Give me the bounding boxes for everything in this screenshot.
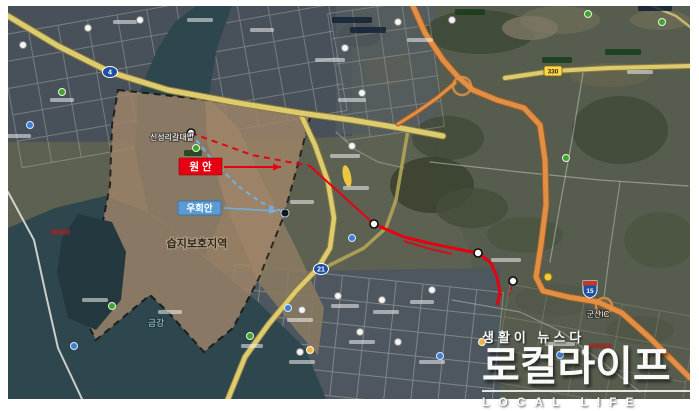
route-bypass-endpoint bbox=[281, 209, 289, 217]
micro-label bbox=[315, 58, 345, 62]
poi-marker-g[interactable] bbox=[659, 19, 666, 26]
station-area-label: 신성리갈대밭 bbox=[150, 133, 195, 142]
poi-marker-b[interactable] bbox=[71, 343, 78, 350]
poi-marker-y[interactable] bbox=[479, 339, 486, 346]
poi-marker-g[interactable] bbox=[193, 145, 200, 152]
poi-marker-b[interactable] bbox=[349, 235, 356, 242]
svg-text:21: 21 bbox=[317, 267, 325, 274]
micro-label bbox=[455, 9, 485, 15]
micro-label bbox=[419, 360, 445, 364]
poi-marker-w[interactable] bbox=[297, 349, 304, 356]
poi-marker-w[interactable] bbox=[582, 349, 589, 356]
micro-label bbox=[330, 154, 360, 158]
micro-label bbox=[605, 49, 641, 55]
micro-label bbox=[331, 304, 359, 308]
micro-label bbox=[491, 258, 521, 262]
micro-label bbox=[241, 344, 263, 348]
micro-label bbox=[542, 57, 572, 63]
poi-marker-w[interactable] bbox=[395, 339, 402, 346]
svg-text:330: 330 bbox=[548, 69, 559, 76]
micro-label bbox=[50, 230, 70, 235]
poi-marker-g[interactable] bbox=[109, 303, 116, 310]
micro-label bbox=[407, 38, 433, 42]
wetland-area-label: 습지보호지역 bbox=[167, 236, 228, 250]
micro-label bbox=[8, 134, 31, 138]
micro-label bbox=[350, 27, 386, 33]
poi-marker-g[interactable] bbox=[585, 11, 592, 18]
micro-label bbox=[290, 200, 314, 204]
satellite-map[interactable]: 42133015 원 안우회안 습지보호지역금강군산IC신성리갈대밭 bbox=[8, 6, 690, 399]
poi-marker-b[interactable] bbox=[27, 122, 34, 129]
road-shield: 15 bbox=[583, 281, 597, 298]
poi-marker-g[interactable] bbox=[59, 89, 66, 96]
station-marker[interactable] bbox=[370, 220, 378, 228]
micro-label bbox=[289, 360, 315, 364]
micro-label bbox=[410, 300, 434, 304]
micro-label bbox=[588, 344, 612, 349]
poi-marker-b[interactable] bbox=[285, 305, 292, 312]
micro-label bbox=[338, 98, 366, 102]
micro-label bbox=[50, 98, 74, 102]
micro-label bbox=[373, 310, 399, 314]
station-marker[interactable] bbox=[509, 277, 517, 285]
poi-marker-w[interactable] bbox=[335, 293, 342, 300]
micro-label bbox=[545, 342, 575, 346]
svg-text:15: 15 bbox=[586, 288, 594, 295]
micro-label bbox=[287, 318, 313, 322]
station-marker[interactable] bbox=[474, 249, 482, 257]
poi-marker-w[interactable] bbox=[299, 307, 306, 314]
poi-marker-g[interactable] bbox=[247, 333, 254, 340]
poi-marker-w[interactable] bbox=[85, 25, 92, 32]
poi-marker-w[interactable] bbox=[357, 329, 364, 336]
svg-text:우회안: 우회안 bbox=[186, 203, 212, 215]
route-original-callout: 원 안 bbox=[179, 158, 222, 175]
micro-label bbox=[638, 6, 672, 11]
poi-marker-w[interactable] bbox=[395, 19, 402, 26]
route-bypass-callout: 우회안 bbox=[178, 201, 221, 215]
micro-label bbox=[82, 298, 108, 302]
micro-label bbox=[250, 28, 274, 32]
road-shield bbox=[544, 273, 552, 281]
micro-label bbox=[158, 310, 182, 314]
road-shield: 21 bbox=[314, 264, 329, 275]
poi-marker-w[interactable] bbox=[342, 45, 349, 52]
micro-label bbox=[332, 17, 372, 23]
interchange-label: 군산IC bbox=[587, 309, 610, 319]
poi-marker-y[interactable] bbox=[307, 347, 314, 354]
poi-marker-w[interactable] bbox=[379, 297, 386, 304]
road-shield: 4 bbox=[103, 67, 118, 78]
poi-marker-w[interactable] bbox=[449, 17, 456, 24]
poi-marker-w[interactable] bbox=[349, 143, 356, 150]
micro-label bbox=[187, 18, 213, 22]
poi-marker-b[interactable] bbox=[557, 352, 564, 359]
poi-marker-w[interactable] bbox=[359, 90, 366, 97]
poi-marker-w[interactable] bbox=[429, 287, 436, 294]
poi-marker-w[interactable] bbox=[20, 42, 27, 49]
svg-text:4: 4 bbox=[108, 70, 112, 77]
road-shield: 330 bbox=[544, 66, 562, 76]
poi-marker-b[interactable] bbox=[437, 353, 444, 360]
micro-label bbox=[343, 186, 369, 190]
river-label: 금강 bbox=[148, 318, 165, 328]
poi-marker-g[interactable] bbox=[563, 155, 570, 162]
micro-label bbox=[113, 20, 137, 24]
poi-marker-w[interactable] bbox=[137, 17, 144, 24]
micro-label bbox=[349, 340, 375, 344]
svg-text:원 안: 원 안 bbox=[189, 160, 212, 173]
micro-label bbox=[184, 150, 202, 156]
micro-label bbox=[627, 70, 653, 74]
